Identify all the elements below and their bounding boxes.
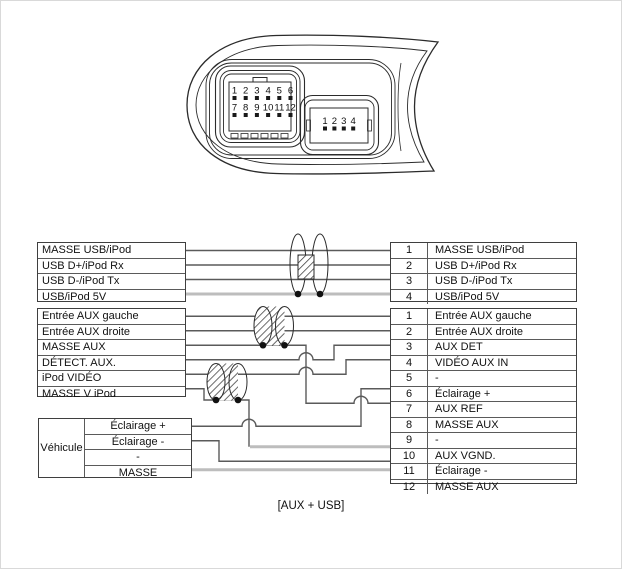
wire-detect-aux: [185, 345, 391, 360]
shield-symbol-aux-pair: [254, 307, 294, 349]
pin-number: 2: [391, 259, 428, 274]
pin-number: 9: [391, 433, 428, 448]
table-row: Entrée AUX gauche: [38, 309, 185, 324]
pin-number: 9: [254, 103, 259, 114]
connector-edge-line: [398, 63, 401, 151]
table-row: -: [85, 449, 191, 465]
table-row: Entrée AUX droite: [38, 324, 185, 340]
table-row: DÉTECT. AUX.: [38, 355, 185, 371]
pin-number: 3: [391, 274, 428, 289]
pin-number: 3: [254, 86, 259, 97]
shield-drain-dot: [281, 342, 288, 349]
table-row: MASSE: [85, 465, 191, 481]
signal-label: MASSE: [119, 466, 158, 481]
plug-12pin-bottom-tabs: [231, 134, 288, 139]
table-row: 10AUX VGND.: [391, 448, 576, 464]
signal-label: -: [428, 433, 439, 448]
signal-label: Éclairage -: [428, 464, 488, 479]
pin-number: 1: [391, 309, 428, 324]
diagram-caption: [AUX + USB]: [1, 500, 621, 512]
signal-label: -: [136, 450, 140, 465]
pin-number: 1: [232, 86, 237, 97]
signal-label: USB/iPod 5V: [38, 290, 106, 305]
table-row: Éclairage +: [85, 419, 191, 434]
table-row: USB D+/iPod Rx: [38, 258, 185, 274]
table-row: 9-: [391, 432, 576, 448]
signal-label: Éclairage +: [110, 419, 165, 434]
pin-number: 2: [391, 325, 428, 340]
signal-label: Entrée AUX droite: [38, 325, 130, 340]
pin-number: 5: [391, 371, 428, 386]
pin-number: 12: [391, 480, 428, 495]
pin-number: 4: [351, 116, 356, 127]
vehicule-header: Véhicule: [39, 419, 85, 477]
pin-number: 1: [391, 243, 428, 258]
pin-number: 2: [243, 86, 248, 97]
signal-label: MASSE AUX: [428, 480, 499, 495]
signal-label: MASSE AUX: [428, 418, 499, 433]
table-row: 4USB/iPod 5V: [391, 289, 576, 305]
wiring-diagram-page: 1 2 3 4 5 6 7 8 9 10 11 12 1 2 3 4: [0, 0, 622, 569]
signal-label: Entrée AUX gauche: [38, 309, 139, 324]
pin-number: 7: [391, 402, 428, 417]
pin-number: 4: [391, 356, 428, 371]
plug-4pin-pin-squares: [323, 127, 355, 131]
plug-12pin-numbers: 1 2 3 4 5 6 7 8 9 10 11 12: [232, 86, 296, 114]
table-row: MASSE V iPod: [38, 386, 185, 402]
plug-4pin-numbers: 1 2 3 4: [322, 116, 355, 127]
pin-number: 3: [341, 116, 346, 127]
signal-label: AUX DET: [428, 340, 483, 355]
table-row: 2Entrée AUX droite: [391, 324, 576, 340]
shield-drain-dot: [295, 291, 302, 298]
table-row: MASSE AUX: [38, 339, 185, 355]
table-row: Éclairage -: [85, 434, 191, 450]
signal-label: Entrée AUX gauche: [428, 309, 532, 324]
table-row: 1Entrée AUX gauche: [391, 309, 576, 324]
signal-label: USB/iPod 5V: [428, 290, 499, 305]
signal-label: Entrée AUX droite: [428, 325, 523, 340]
table-row: 3AUX DET: [391, 339, 576, 355]
signal-label: Éclairage +: [428, 387, 490, 402]
pin-number: 4: [265, 86, 270, 97]
signal-label: USB D-/iPod Tx: [428, 274, 512, 289]
signal-label: MASSE USB/iPod: [38, 243, 131, 258]
signal-label: AUX REF: [428, 402, 483, 417]
pin-number: 11: [274, 103, 284, 114]
table-row: USB/iPod 5V: [38, 289, 185, 305]
table-row: 11Éclairage -: [391, 463, 576, 479]
table-row: MASSE USB/iPod: [38, 243, 185, 258]
aux-right-table: 1Entrée AUX gauche 2Entrée AUX droite 3A…: [390, 308, 577, 484]
aux-left-table: Entrée AUX gauche Entrée AUX droite MASS…: [37, 308, 186, 397]
table-row: 4VIDÉO AUX IN: [391, 355, 576, 371]
connector-illustration: [187, 35, 438, 174]
shield-drain-dot: [260, 342, 267, 349]
pin-number: 1: [322, 116, 327, 127]
table-row: 5-: [391, 370, 576, 386]
table-row: 12MASSE AUX: [391, 479, 576, 495]
shield-symbol-video-pair: [207, 364, 247, 404]
signal-label: -: [428, 371, 439, 386]
pin-number: 10: [263, 103, 274, 114]
signal-label: Éclairage -: [112, 435, 165, 450]
signal-label: MASSE USB/iPod: [428, 243, 524, 258]
signal-label: VIDÉO AUX IN: [428, 356, 508, 371]
table-row: 8MASSE AUX: [391, 417, 576, 433]
table-row: USB D-/iPod Tx: [38, 273, 185, 289]
pin-number: 7: [232, 103, 237, 114]
pin-number: 4: [391, 290, 428, 305]
pin-number: 6: [391, 387, 428, 402]
signal-label: MASSE AUX: [38, 340, 106, 355]
shield-drain-dot: [317, 291, 324, 298]
pin-number: 2: [332, 116, 337, 127]
table-row: 2USB D+/iPod Rx: [391, 258, 576, 274]
table-row: 7AUX REF: [391, 401, 576, 417]
pin-number: 12: [285, 103, 296, 114]
signal-label: AUX VGND.: [428, 449, 496, 464]
signal-label: iPod VIDÉO: [38, 371, 101, 386]
shield-drain-dot: [213, 397, 220, 404]
table-row: 3USB D-/iPod Tx: [391, 273, 576, 289]
pin-number: 3: [391, 340, 428, 355]
shield-drain-dot: [235, 397, 242, 404]
table-row: 1MASSE USB/iPod: [391, 243, 576, 258]
signal-label: MASSE V iPod: [38, 387, 116, 402]
vehicule-table: Véhicule Éclairage + Éclairage - - MASSE: [38, 418, 192, 478]
signal-label: DÉTECT. AUX.: [38, 356, 116, 371]
connector-outer-outline: [187, 35, 438, 174]
usb-right-table: 1MASSE USB/iPod 2USB D+/iPod Rx 3USB D-/…: [390, 242, 577, 302]
wire-eclairage-moins: [191, 441, 391, 462]
table-row: iPod VIDÉO: [38, 370, 185, 386]
usb-left-table: MASSE USB/iPod USB D+/iPod Rx USB D-/iPo…: [37, 242, 186, 302]
signal-label: USB D+/iPod Rx: [428, 259, 517, 274]
pin-number: 11: [391, 464, 428, 479]
signal-label: USB D-/iPod Tx: [38, 274, 119, 289]
plug-12pin-top-notch: [253, 78, 267, 83]
signal-label: USB D+/iPod Rx: [38, 259, 124, 274]
pin-number: 8: [243, 103, 248, 114]
pin-number: 10: [391, 449, 428, 464]
pin-number: 5: [277, 86, 282, 97]
pin-number: 6: [288, 86, 293, 97]
plug-4pin: [301, 96, 379, 155]
pin-number: 8: [391, 418, 428, 433]
wires-plain: [185, 251, 391, 462]
table-row: 6Éclairage +: [391, 386, 576, 402]
